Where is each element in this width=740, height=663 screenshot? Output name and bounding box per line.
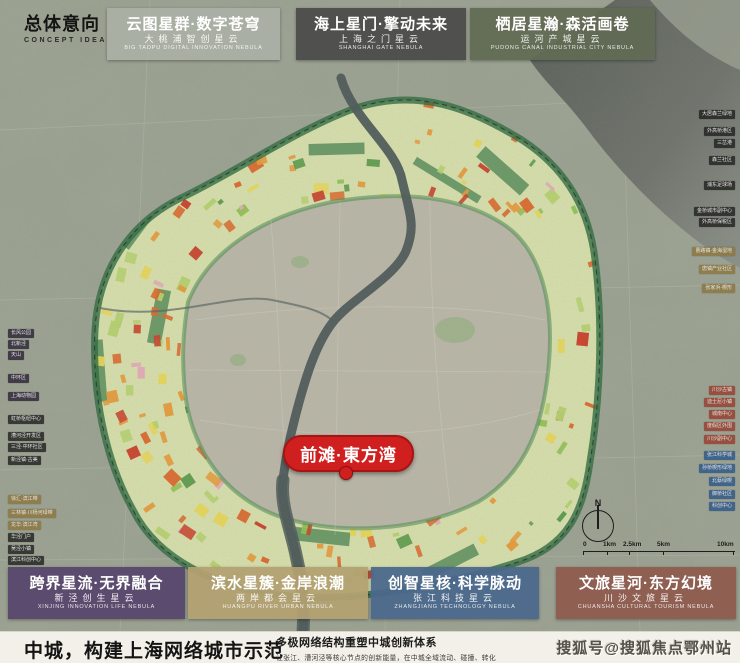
footer-bar: 中城，构建上海网络城市示范 多极网络结构重塑中城创新体系 让张江、漕河泾等核心节… [0,631,740,663]
nebula-subtitle-en: XINJING INNOVATION LIFE NEBULA [38,604,155,611]
concept-title-block: 总体意向 CONCEPT IDEA [24,10,107,44]
map-micro-label: 城南中心 [709,410,735,419]
nebula-label-xinjing: 跨界星流·无界融合 新泾创生星云 XINJING INNOVATION LIFE… [8,567,185,619]
map-micro-label: 御桥社区 [709,490,735,499]
concept-subtitle: CONCEPT IDEA [24,37,107,44]
map-micro-label: 龙华·滨江湾 [8,521,41,530]
nebula-title: 栖居星瀚·森活画卷 [496,16,630,33]
nebula-subtitle-en: HUANGPU RIVER URBAN NEBULA [223,604,334,611]
satellite-noise [0,0,740,632]
nebula-subtitle-zh: 川沙文旅星云 [604,593,688,604]
scale-line [583,551,735,556]
nebula-title: 创智星核·科学脉动 [388,575,522,592]
nebula-label-shanghai-gate: 海上星门·擎动未来 上海之门星云 SHANGHAI GATE NEBULA [296,8,466,60]
map-micro-label: 度假区外围 [704,422,735,431]
nebula-title: 海上星门·擎动未来 [314,16,448,33]
satellite-planning-map [0,0,740,632]
map-micro-label: 三泾·中环社区 [8,443,46,452]
project-marker-dot [339,466,353,480]
map-micro-label: 川沙古镇 [709,386,735,395]
map-micro-label: 虹桥枢纽中心 [8,415,44,424]
nebula-subtitle-en: SHANGHAI GATE NEBULA [339,45,423,52]
nebula-subtitle-zh: 大桃浦智创星云 [144,34,242,45]
map-micro-label: 金桥城市副中心 [694,207,735,216]
scale-tick: 5km [657,541,670,548]
scale-bar: 0 1km 2.5km 5km 10km [583,541,735,557]
map-micro-label: 吴泾小镇 [8,545,34,554]
nebula-label-zhangjiang: 创智星核·科学脉动 张江科技星云 ZHANGJIANG TECHNOLOGY N… [371,567,539,619]
nebula-title: 文旅星河·东方幻境 [579,575,713,592]
nebula-label-chuansha: 文旅星河·东方幻境 川沙文旅星云 CHUANSHA CULTURAL TOURI… [556,567,736,619]
nebula-subtitle-zh: 新泾创生星云 [54,593,138,604]
nebula-subtitle-en: CHUANSHA CULTURAL TOURISM NEBULA [578,604,714,611]
nebula-subtitle-zh: 两岸都会星云 [236,593,320,604]
scale-tick: 0 [583,541,587,548]
map-micro-label: 孙桥楔形绿地 [699,464,735,473]
map-micro-label: 三岔港 [714,139,735,148]
map-micro-label: 北蔡绿楔 [709,477,735,486]
nebula-title: 滨水星簇·金岸浪潮 [211,575,345,592]
footer-description-block: 多极网络结构重塑中城创新体系 让张江、漕河泾等核心节点的创新能量，在中城全域流动… [276,634,496,662]
map-micro-label: 唐镇产业社区 [699,265,735,274]
map-micro-label: 三林镇·川杨河绿带 [8,509,56,518]
map-micro-label: 张江科学城 [704,451,735,460]
map-micro-label: 曹路镇·金海湿地 [692,247,735,256]
map-micro-label: 上海动物园 [8,392,39,401]
watermark: 搜狐号@搜狐焦点鄂州站 [556,637,732,658]
map-micro-label: 科创中心 [709,502,735,511]
map-micro-label: 天山 [8,351,24,360]
nebula-subtitle-zh: 上海之门星云 [339,34,423,45]
map-micro-label: 森兰社区 [709,156,735,165]
scale-tick: 10km [717,541,734,548]
map-micro-label: 漕河泾开发区 [8,432,44,441]
map-micro-label: 外高桥保税区 [699,218,735,227]
nebula-subtitle-en: BIG TAOPU DIGITAL INNOVATION NEBULA [124,45,262,52]
map-micro-label: 大居森兰绿地 [699,110,735,119]
footer-description: 让张江、漕河泾等核心节点的创新能量，在中城全域流动、碰撞、转化 [276,652,496,662]
map-micro-label: 长风公园 [8,329,34,338]
nebula-subtitle-en: PUDONG CANAL INDUSTRIAL CITY NEBULA [491,45,634,52]
map-micro-label: 新泾镇·古美 [8,456,41,465]
nebula-subtitle-zh: 运河产城星云 [520,34,604,45]
map-micro-label: 中环区 [8,374,29,383]
footer-headline: 中城，构建上海网络城市示范 [24,636,284,663]
footer-subheadline: 多极网络结构重塑中城创新体系 [276,634,496,650]
map-micro-label: 川沙副中心 [704,435,735,444]
map-micro-label: 浦东足球场 [704,181,735,190]
nebula-label-huangpu: 滨水星簇·金岸浪潮 两岸都会星云 HUANGPU RIVER URBAN NEB… [188,567,368,619]
compass-circle [582,510,614,542]
poster: 总体意向 CONCEPT IDEA 云图星群·数字苍穹 大桃浦智创星云 BIG … [0,0,740,663]
concept-title: 总体意向 [24,10,107,36]
scale-tick: 2.5km [623,541,641,548]
nebula-title: 跨界星流·无界融合 [30,575,164,592]
map-micro-label: 外高桥港区 [704,127,735,136]
nebula-label-taopu: 云图星群·数字苍穹 大桃浦智创星云 BIG TAOPU DIGITAL INNO… [107,8,280,60]
nebula-title: 云图星群·数字苍穹 [127,16,261,33]
map-micro-label: 张家浜·楔形 [702,284,735,293]
compass-needle [597,505,599,529]
scale-tick-labels: 0 1km 2.5km 5km 10km [583,541,735,549]
map-micro-label: 滨江科创中心 [8,556,44,565]
map-micro-label: 徐汇·滨江带 [8,495,41,504]
map-micro-label: 迪士尼小镇 [704,398,735,407]
nebula-subtitle-en: ZHANGJIANG TECHNOLOGY NEBULA [394,604,515,611]
scale-tick: 1km [603,541,616,548]
map-micro-label: 华泾门户 [8,533,34,542]
map-micro-label: 北新泾 [8,340,29,349]
nebula-subtitle-zh: 张江科技星云 [413,593,497,604]
nebula-label-canal: 栖居星瀚·森活画卷 运河产城星云 PUDONG CANAL INDUSTRIAL… [470,8,655,60]
